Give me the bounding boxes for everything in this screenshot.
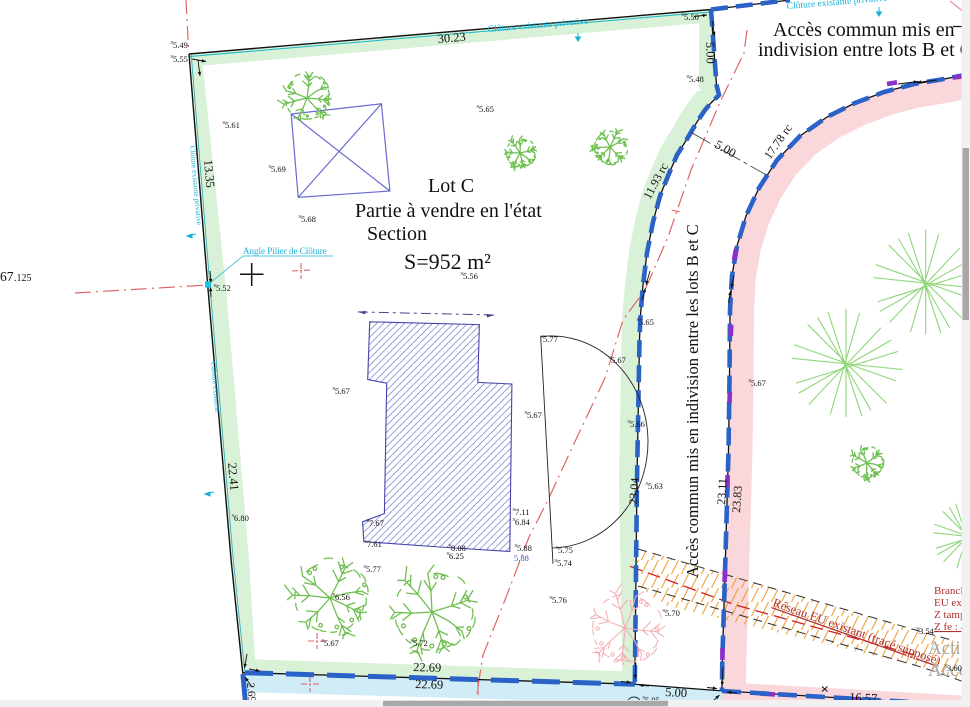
svg-text:13.35: 13.35: [201, 159, 217, 188]
svg-text:×5.70: ×5.70: [662, 607, 680, 618]
svg-text:23.04: 23.04: [626, 477, 642, 505]
svg-text:×7.67: ×7.67: [366, 517, 384, 528]
svg-text:×5.55: ×5.55: [170, 53, 188, 64]
svg-text:Lot C: Lot C: [428, 175, 474, 197]
svg-text:×5.67: ×5.67: [321, 637, 339, 648]
svg-text:22.41: 22.41: [225, 462, 241, 491]
svg-text:×5.66: ×5.66: [627, 418, 645, 429]
svg-text:Clôture existante privative: Clôture existante privative: [786, 0, 887, 12]
svg-text:Partie à vendre en l'état: Partie à vendre en l'état: [355, 200, 542, 222]
svg-text:×5.76: ×5.76: [549, 594, 567, 605]
svg-text:×5.63: ×5.63: [645, 480, 663, 491]
svg-text:×3.54: ×3.54: [916, 625, 935, 636]
svg-text:×5.50: ×5.50: [681, 11, 699, 22]
svg-text:×5.69: ×5.69: [268, 163, 286, 174]
svg-text:30.23: 30.23: [437, 30, 466, 46]
svg-text:indivision entre lots B et C: indivision entre lots B et C: [758, 39, 970, 61]
svg-text:2.69: 2.69: [244, 682, 258, 703]
svg-text:67: 67: [0, 269, 14, 284]
svg-text:Angle Pilier de Clôture: Angle Pilier de Clôture: [243, 246, 327, 256]
svg-text:23.83: 23.83: [729, 485, 745, 513]
svg-text:×5.65: ×5.65: [636, 316, 654, 327]
svg-text:×5.67: ×5.67: [608, 354, 626, 365]
svg-text:22.69: 22.69: [413, 660, 442, 675]
svg-text:×5.48: ×5.48: [686, 73, 704, 84]
svg-text:22.69: 22.69: [415, 677, 444, 692]
svg-text:Accès commun mis en: Accès commun mis en: [773, 19, 955, 41]
svg-text:×5.72: ×5.72: [410, 637, 428, 648]
svg-text:×6.80: ×6.80: [231, 512, 249, 523]
svg-text:×5.88: ×5.88: [514, 542, 532, 553]
svg-text:×5.65: ×5.65: [476, 103, 494, 114]
svg-text:23.11: 23.11: [714, 478, 730, 505]
svg-text:5.00: 5.00: [665, 685, 688, 700]
svg-text:×5.61: ×5.61: [222, 119, 240, 130]
svg-text:×5.56: ×5.56: [460, 270, 478, 281]
svg-text:×5.77: ×5.77: [363, 563, 381, 574]
svg-text:×5.52: ×5.52: [213, 282, 231, 293]
svg-text:5.88: 5.88: [514, 553, 529, 563]
svg-text:×5.49: ×5.49: [170, 39, 188, 50]
svg-text:×5.67: ×5.67: [332, 385, 350, 396]
svg-text:Branch: Branch: [934, 585, 966, 597]
svg-text:S=952 m²: S=952 m²: [404, 249, 491, 274]
svg-text:×6.25: ×6.25: [446, 550, 464, 561]
svg-text:Accès commun mis en indivision: Accès commun mis en indivision entre les…: [683, 224, 702, 578]
svg-text:×5.74: ×5.74: [554, 557, 573, 568]
svg-text:×5.67: ×5.67: [524, 409, 542, 420]
svg-text:Section: Section: [367, 223, 427, 245]
svg-text:×6.84: ×6.84: [512, 516, 531, 527]
svg-text:×7.61: ×7.61: [364, 538, 382, 549]
svg-text:×5.67: ×5.67: [748, 377, 766, 388]
svg-text:×5.68: ×5.68: [298, 213, 316, 224]
svg-text:.125: .125: [14, 273, 32, 284]
svg-text:×5.75: ×5.75: [555, 544, 573, 555]
svg-text:5.00: 5.00: [703, 42, 718, 64]
svg-text:×6.56: ×6.56: [332, 591, 350, 602]
svg-text:×5.77: ×5.77: [540, 333, 558, 344]
svg-text:×3.60: ×3.60: [944, 662, 962, 673]
